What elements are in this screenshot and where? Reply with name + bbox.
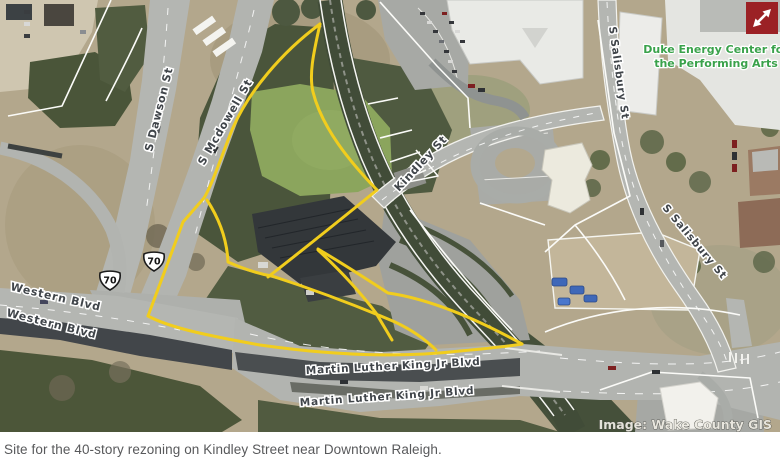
caption-bar: Site for the 40-story rezoning on Kindle… <box>0 432 780 466</box>
aerial-map: S Dawson St S Mcdowell St Kindley St S S… <box>0 0 780 432</box>
expand-button[interactable] <box>746 2 778 34</box>
poi-label-line1: Duke Energy Center for <box>643 43 780 56</box>
aerial-map-svg: S Dawson St S Mcdowell St Kindley St S S… <box>0 0 780 432</box>
figure-caption: Site for the 40-story rezoning on Kindle… <box>0 442 442 457</box>
map-attribution: Image: Wake County GIS <box>599 417 772 432</box>
article-figure: S Dawson St S Mcdowell St Kindley St S S… <box>0 0 780 466</box>
poi-label-duke-energy-center: Duke Energy Center for the Performing Ar… <box>643 43 780 70</box>
svg-text:70: 70 <box>147 257 161 268</box>
expand-diagonal-icon <box>746 2 778 34</box>
poi-label-line2: the Performing Arts <box>654 57 778 70</box>
svg-text:70: 70 <box>103 276 117 287</box>
